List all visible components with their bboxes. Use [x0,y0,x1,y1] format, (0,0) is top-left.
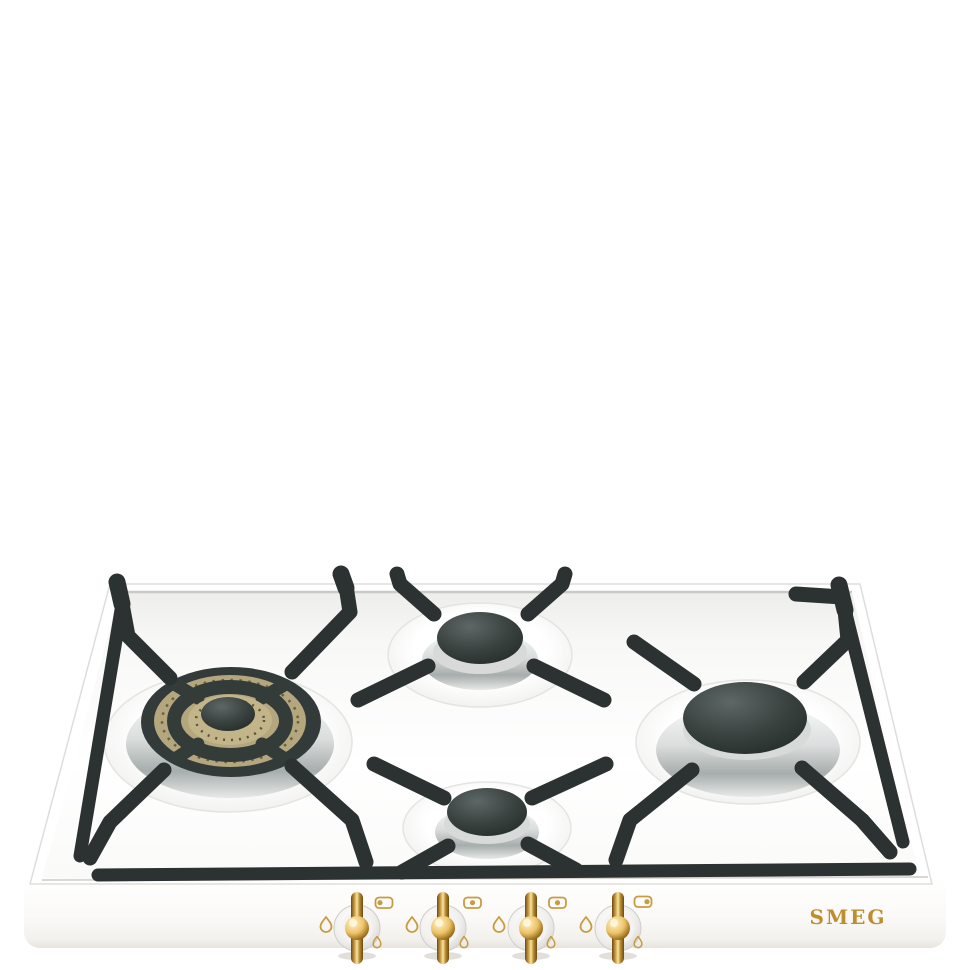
burner-back-center [433,612,527,674]
knob-boss [606,916,630,940]
knob-boss [345,916,369,940]
burner-cap-back-center [437,612,523,664]
burner-cap-front-left [201,697,255,731]
knob-boss [519,916,543,940]
product-photo-stage: SMEG [0,0,970,970]
knob-boss [431,916,455,940]
burner-front-center [444,788,530,844]
front-fascia [24,876,946,948]
burner-cap-front-center [447,788,527,836]
gas-hob-illustration: SMEG [0,0,970,970]
smeg-logo: SMEG [810,905,887,929]
pan-support-front-rail [98,869,910,875]
burner-cap-right [683,682,807,754]
